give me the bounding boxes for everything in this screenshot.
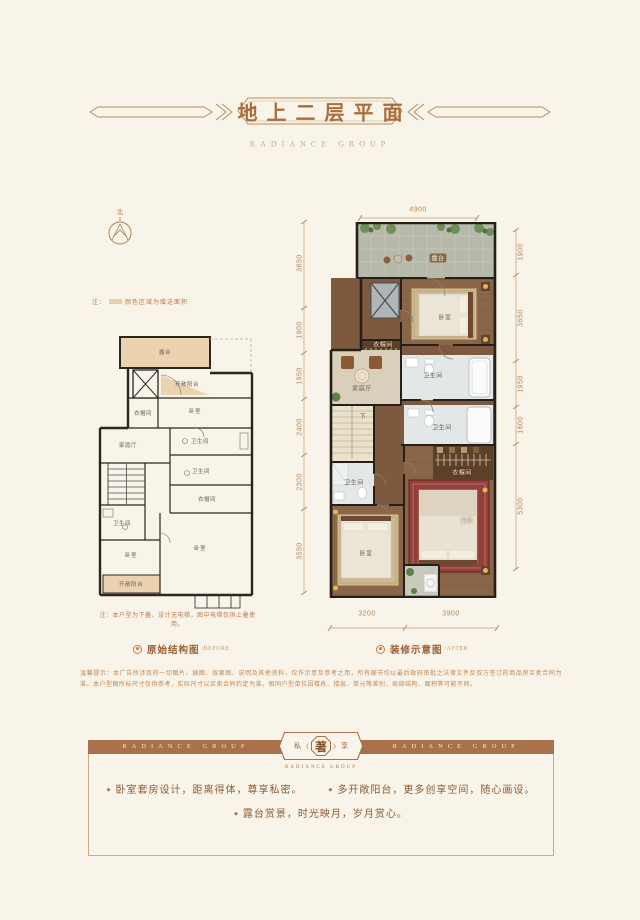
gift-area-note: 注： 颜色区域为赠送面积	[92, 297, 188, 306]
seal-left-char: 私	[294, 741, 301, 751]
after-caption: 装修示意图 /AFTER	[376, 643, 468, 655]
feature-bullets-row: 卧室套房设计，距离得体，尊享私密。 多开敞阳台，更多创享空间，随心画设。	[89, 781, 553, 796]
feature-bullet: 卧室套房设计，距离得体，尊享私密。	[107, 781, 303, 796]
stairs-icon	[108, 463, 145, 505]
caption-bullet-icon	[133, 645, 142, 654]
dim-right: 3650	[518, 309, 525, 327]
feature-banner: RADIANCE GROUP RADIANCE GROUP 私 《 著 》 享 …	[88, 740, 554, 856]
page-title: 地上二层平面	[229, 97, 412, 126]
brand-subtitle: RADIANCE GROUP	[250, 140, 390, 149]
before-outer-walls	[100, 368, 252, 595]
before-floorplan: 露台 开敞阳台 卧室 衣帽间 家庭厅 卫生间 卫生间 衣帽间 卫生间 卧室 卧室…	[95, 333, 260, 633]
dim-left: 1900	[297, 321, 304, 339]
dim-right: 1900	[518, 243, 525, 261]
dim-left: 2300	[297, 473, 304, 491]
room-label: 卫生间	[192, 467, 210, 475]
dim-right: 1950	[518, 375, 525, 393]
after-caption-text: 装修示意图	[390, 642, 443, 656]
room-label: 卫生间	[113, 519, 131, 527]
elevator-icon	[133, 370, 158, 398]
room-label: 卧室	[194, 544, 206, 552]
seal-center-badge: 著	[311, 736, 331, 756]
dim-left: 2400	[297, 418, 304, 436]
dimension-lines	[290, 200, 530, 640]
before-plan-note: 注：本户型为下叠，设计无电梯，图中电梯仅供上叠使用。	[95, 610, 260, 628]
ribbon-brand-left: RADIANCE GROUP	[88, 743, 284, 750]
dim-right: 1600	[518, 416, 525, 434]
room-label: 卫生间	[191, 437, 209, 445]
banner-ribbon: RADIANCE GROUP RADIANCE GROUP 私 《 著 》 享	[88, 740, 554, 754]
room-label: 卧室	[125, 551, 137, 559]
seal-right-char: 享	[341, 741, 348, 751]
before-caption-en: /BEFORE	[202, 646, 230, 652]
seal-emblem: 私 《 著 》 享	[279, 732, 363, 760]
dim-left: 3550	[297, 542, 304, 560]
poster-page: 地上二层平面 RADIANCE GROUP 北 注： 颜色区域为赠送面积	[0, 0, 640, 920]
seal-center-char: 著	[312, 737, 330, 755]
dim-left: 1950	[297, 367, 304, 385]
room-label: 卧室	[189, 407, 201, 415]
room-label: 露台	[159, 348, 171, 356]
room-label: 衣帽间	[134, 409, 152, 417]
room-label: 衣帽间	[198, 495, 216, 503]
room-label: 家庭厅	[119, 441, 137, 449]
seal-right-deco: 》	[333, 742, 339, 751]
before-caption-text: 原始结构图	[147, 642, 200, 656]
ribbon-brand-right: RADIANCE GROUP	[358, 743, 554, 750]
dim-right: 5300	[518, 497, 525, 515]
room-label: 开敞阳台	[119, 580, 143, 588]
dim-left: 3650	[297, 254, 304, 272]
gift-note-text: 颜色区域为赠送面积	[125, 297, 188, 306]
after-caption-en: /AFTER	[445, 646, 469, 652]
feature-bullet: 多开敞阳台，更多创享空间，随心画设。	[329, 781, 536, 796]
seal-sub-brand: RADIANCE GROUP	[285, 765, 357, 770]
feature-bullet: 露台赏景，时光映月，岁月赏心。	[234, 805, 408, 820]
compass-icon: 北	[100, 206, 140, 248]
compass-north-label: 北	[117, 208, 124, 216]
feature-bullets-row: 露台赏景，时光映月，岁月赏心。	[89, 805, 553, 820]
dim-bottom: 3200	[358, 611, 376, 618]
before-floorplan-drawing	[95, 333, 260, 633]
entry-steps	[195, 595, 240, 608]
before-inner-walls	[100, 398, 252, 595]
seal-left-deco: 《	[303, 742, 309, 751]
gift-area-swatch	[109, 299, 122, 304]
dim-top: 4900	[409, 207, 427, 214]
before-caption: 原始结构图 /BEFORE	[133, 643, 230, 655]
disclaimer-text: 温馨提示：本广告所涉及的一切图片、插图、效果图、说明及其他资料，仅作示意及参考之…	[80, 669, 562, 691]
room-label: 开敞阳台	[175, 380, 199, 388]
fixtures	[103, 375, 248, 543]
gift-note-prefix: 注：	[92, 297, 106, 306]
caption-bullet-icon	[376, 645, 385, 654]
dim-bottom: 3900	[442, 611, 460, 618]
